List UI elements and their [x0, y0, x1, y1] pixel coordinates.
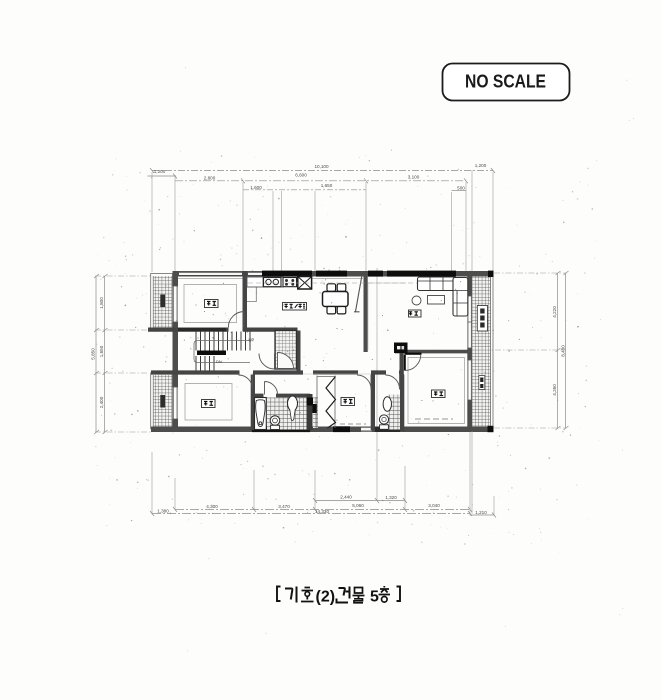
svg-text:1,200: 1,200 — [475, 163, 487, 168]
svg-text:2,440: 2,440 — [340, 495, 352, 500]
svg-text:5: 5 — [370, 589, 379, 606]
svg-text:DN: DN — [216, 359, 222, 364]
svg-text:2,400: 2,400 — [99, 396, 104, 408]
svg-text:5,850: 5,850 — [91, 348, 96, 360]
svg-text:UP: UP — [249, 338, 255, 343]
svg-text:1,320: 1,320 — [385, 495, 397, 500]
svg-text:3,100: 3,100 — [408, 175, 420, 180]
svg-text:3,040: 3,040 — [428, 503, 440, 508]
svg-text:NO SCALE: NO SCALE — [465, 71, 546, 92]
svg-text:3,470: 3,470 — [278, 504, 290, 509]
svg-text:6,600: 6,600 — [295, 173, 307, 178]
svg-text:(2): (2) — [316, 589, 336, 606]
svg-text:1,200: 1,200 — [154, 169, 166, 174]
svg-text:1,800: 1,800 — [99, 297, 104, 309]
svg-text:500: 500 — [457, 185, 465, 190]
svg-text:1,650: 1,650 — [321, 183, 333, 188]
svg-text:4,220: 4,220 — [552, 306, 557, 318]
svg-text:1,650: 1,650 — [99, 345, 104, 357]
svg-text:1,210: 1,210 — [475, 510, 487, 515]
svg-text:5,060: 5,060 — [352, 503, 364, 508]
svg-text:8,480: 8,480 — [561, 345, 566, 357]
svg-text:1,600: 1,600 — [250, 185, 262, 190]
svg-text:2,800: 2,800 — [204, 176, 216, 181]
svg-text:10,100: 10,100 — [314, 164, 328, 169]
svg-text:1,380: 1,380 — [157, 509, 169, 514]
svg-text:4,260: 4,260 — [552, 384, 557, 396]
svg-text:14,330: 14,330 — [315, 509, 329, 514]
